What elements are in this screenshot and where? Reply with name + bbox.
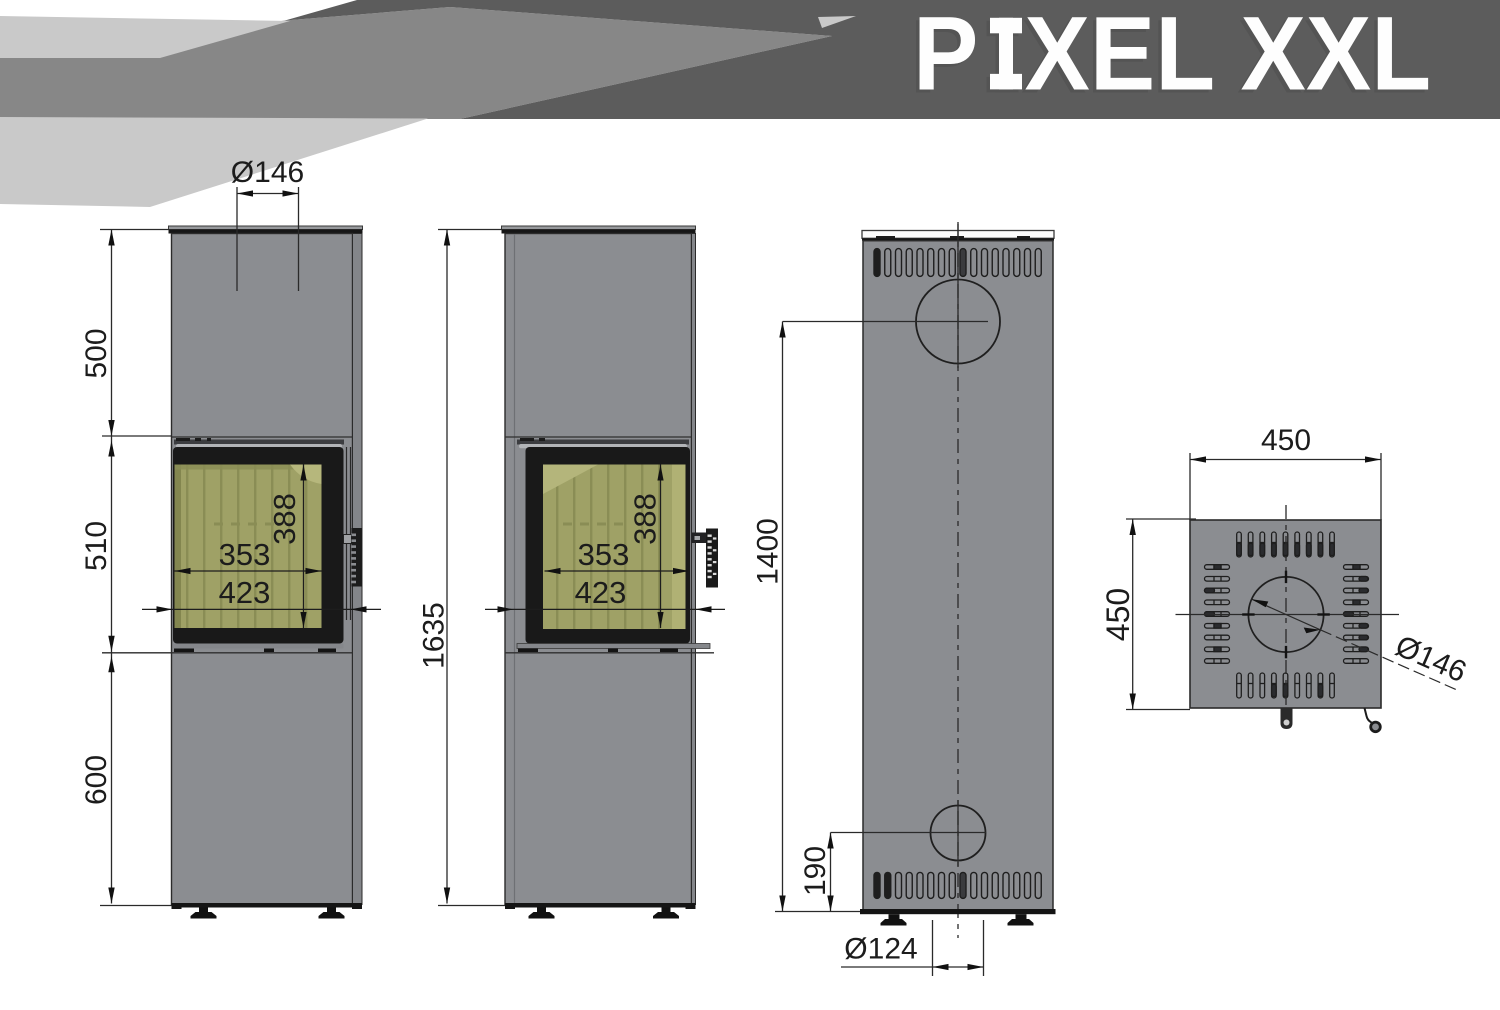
svg-text:600: 600 (80, 755, 113, 805)
svg-text:353: 353 (578, 537, 630, 572)
svg-text:P: P (913, 0, 978, 112)
svg-text:190: 190 (799, 846, 832, 896)
svg-text:500: 500 (80, 328, 113, 378)
svg-text:Ø146: Ø146 (1391, 629, 1471, 689)
svg-text:1635: 1635 (418, 602, 451, 669)
svg-text:388: 388 (628, 493, 663, 545)
svg-text:353: 353 (219, 537, 271, 572)
svg-text:450: 450 (1100, 588, 1136, 641)
svg-text:XEL XXL: XEL XXL (1025, 0, 1432, 112)
svg-text:1400: 1400 (752, 518, 785, 585)
svg-text:510: 510 (80, 521, 113, 571)
svg-text:450: 450 (1261, 424, 1311, 457)
svg-text:Ø146: Ø146 (231, 156, 304, 189)
svg-text:423: 423 (219, 575, 271, 610)
svg-text:Ø124: Ø124 (844, 933, 917, 966)
svg-text:388: 388 (267, 493, 302, 545)
svg-text:423: 423 (575, 575, 627, 610)
